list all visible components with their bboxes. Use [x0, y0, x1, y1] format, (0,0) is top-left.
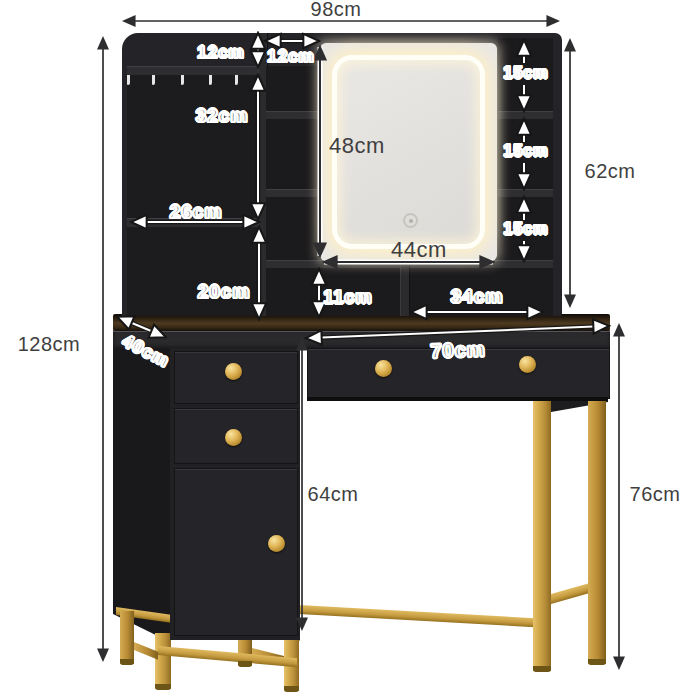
dim-left-shelf-width: 26cm	[170, 202, 223, 221]
vanity-dimension-diagram: 98cm 128cm 62cm 76cm 64cm 48cm 44cm 12cm…	[0, 0, 700, 700]
dim-right-cubby-3: 15cm	[504, 221, 549, 237]
dim-left-compartment-height: 32cm	[196, 106, 249, 125]
dim-right-cubby-2: 15cm	[504, 143, 549, 159]
dim-hutch-height: 62cm	[585, 161, 636, 181]
dim-under-mirror-height: 11cm	[323, 288, 372, 306]
dim-knee-height: 64cm	[308, 484, 359, 504]
dim-mirror-height: 48cm	[329, 135, 385, 157]
dim-mirror-width: 44cm	[391, 239, 447, 261]
dim-table-height: 76cm	[630, 484, 681, 504]
dim-left-lower-height: 20cm	[198, 282, 251, 301]
dimension-arrows	[0, 0, 700, 700]
dim-tabletop-width: 70cm	[430, 339, 486, 361]
dim-top-shelf-height: 12cm	[197, 44, 244, 61]
dim-right-cubby-1: 15cm	[504, 65, 549, 81]
dim-overall-width: 98cm	[311, 0, 362, 19]
dim-overall-height: 128cm	[18, 334, 81, 354]
dim-under-mirror-width: 34cm	[451, 287, 504, 306]
dim-middle-column-width: 12cm	[267, 48, 314, 65]
